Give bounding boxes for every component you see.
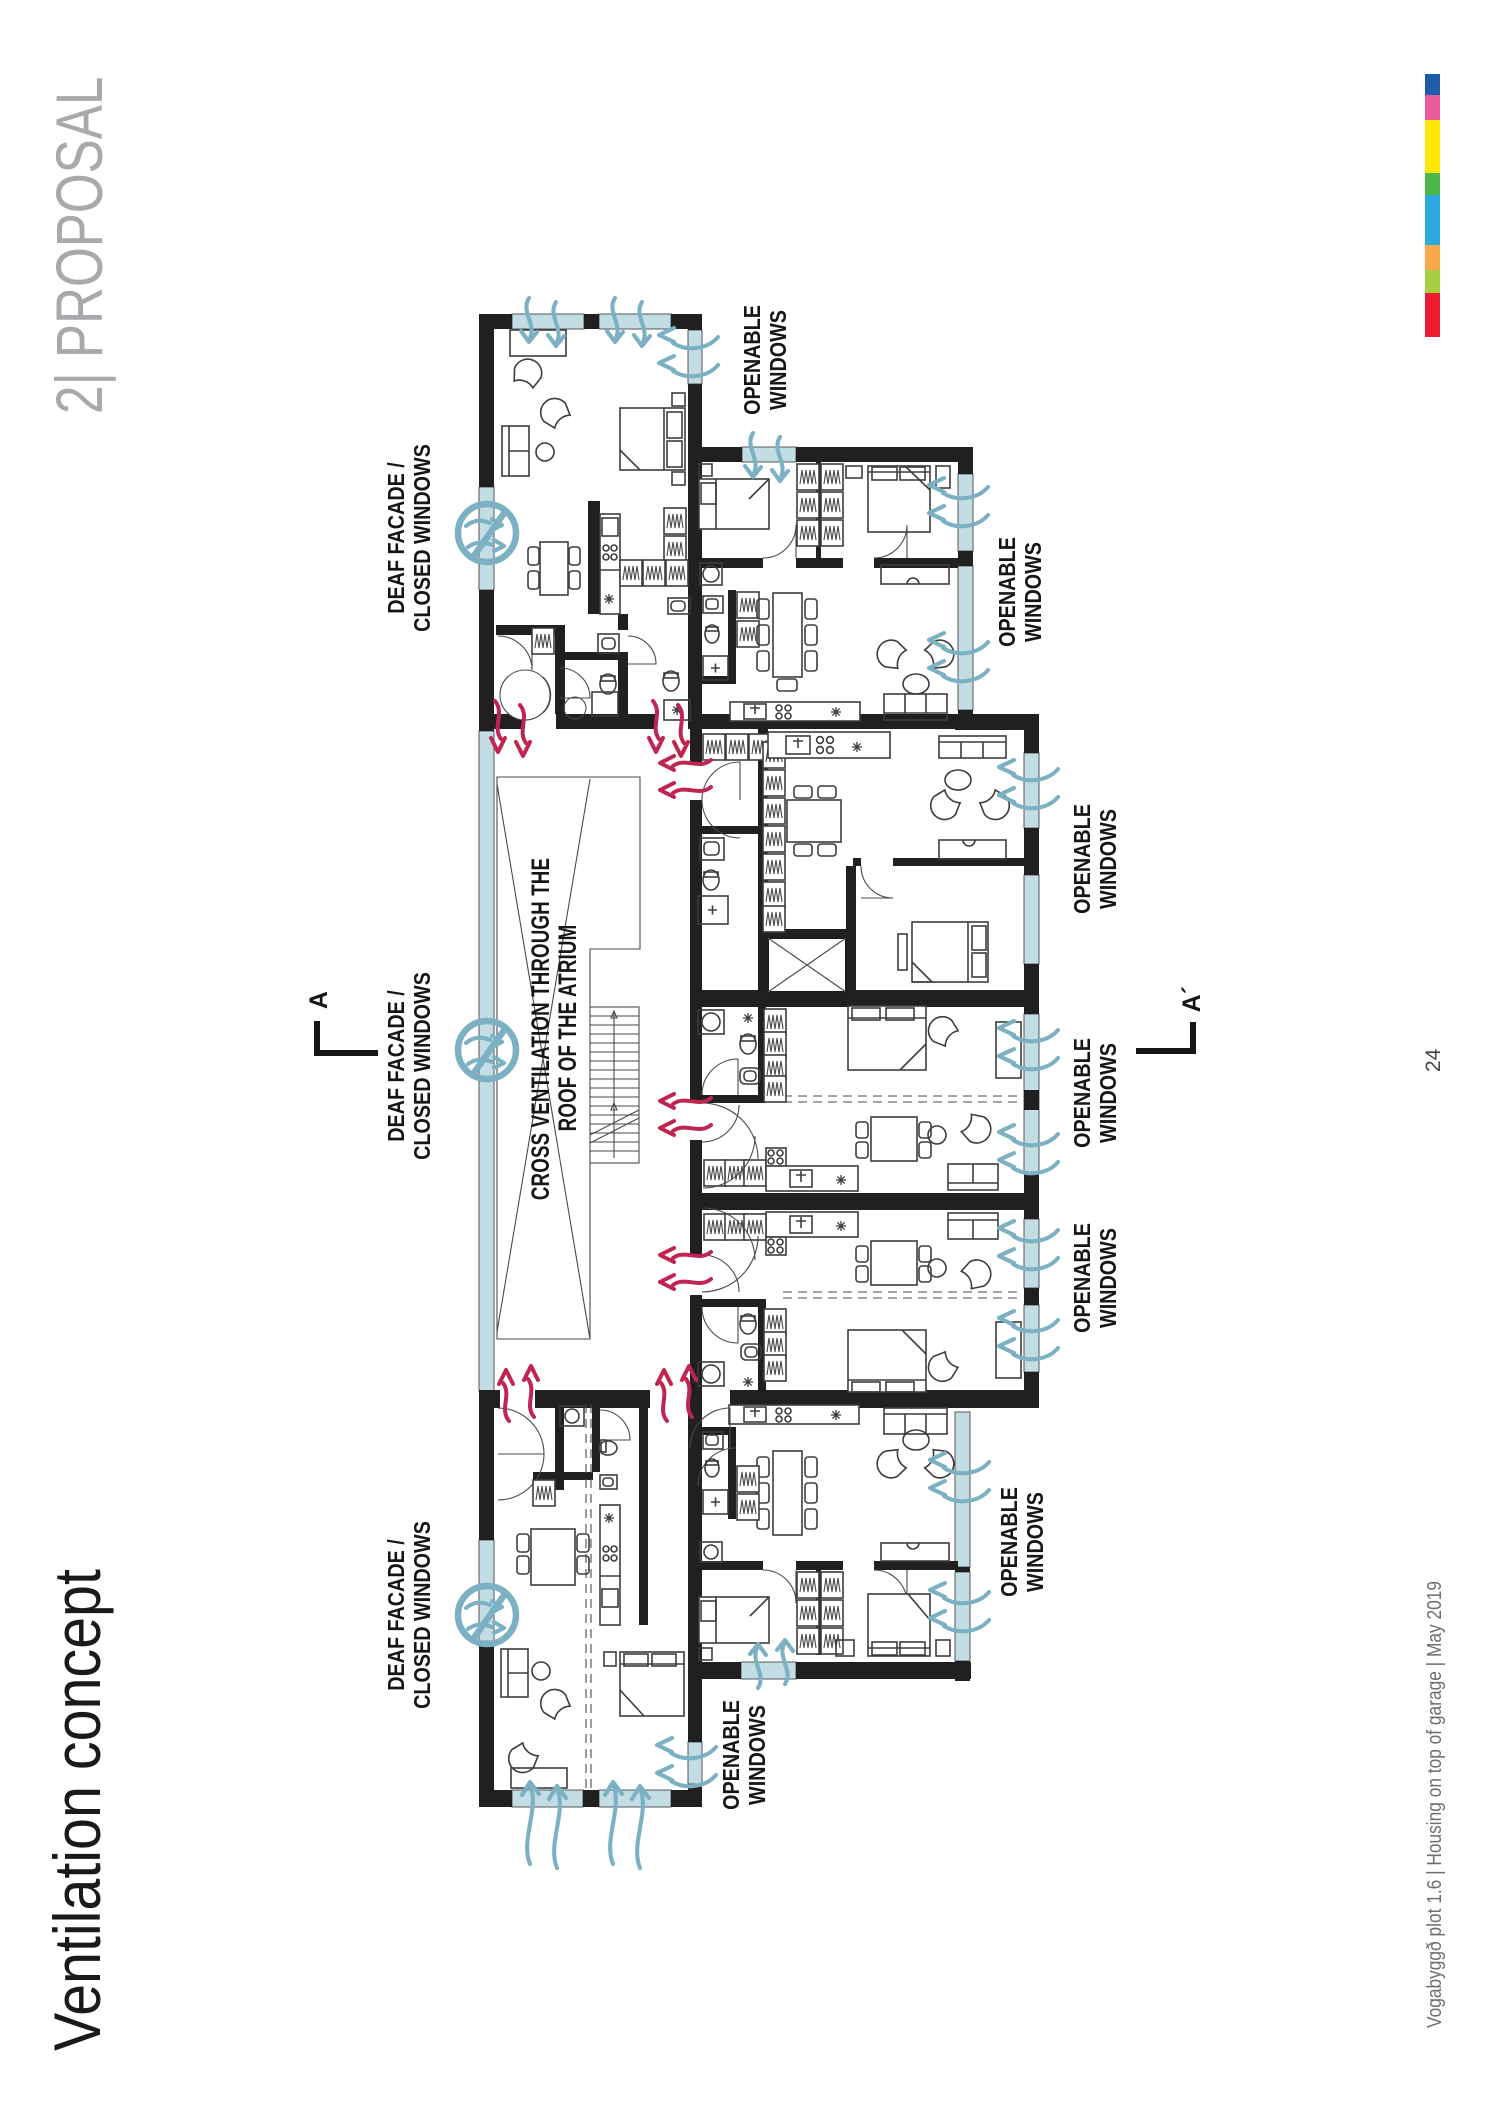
svg-text:DEAF FACADE /: DEAF FACADE / — [384, 990, 410, 1142]
svg-text:OPENABLE: OPENABLE — [1070, 804, 1096, 914]
svg-text:ROOF OF THE ATRIUM: ROOF OF THE ATRIUM — [553, 925, 581, 1132]
svg-text:DEAF FACADE /: DEAF FACADE / — [384, 1539, 410, 1691]
svg-text:A´: A´ — [1178, 986, 1206, 1013]
svg-text:2| PROPOSAL: 2| PROPOSAL — [43, 77, 117, 414]
svg-text:OPENABLE: OPENABLE — [1070, 1223, 1096, 1333]
svg-text:WINDOWS: WINDOWS — [745, 1705, 771, 1805]
svg-text:DEAF FACADE /: DEAF FACADE / — [384, 462, 410, 614]
svg-text:OPENABLE: OPENABLE — [1070, 1038, 1096, 1148]
svg-text:OPENABLE: OPENABLE — [740, 305, 766, 415]
svg-text:OPENABLE: OPENABLE — [995, 537, 1021, 647]
svg-text:Ventilation concept: Ventilation concept — [41, 1569, 115, 2051]
svg-text:CROSS VENTILATION THROUGH THE: CROSS VENTILATION THROUGH THE — [526, 858, 554, 1200]
svg-text:CLOSED WINDOWS: CLOSED WINDOWS — [410, 444, 436, 632]
svg-text:WINDOWS: WINDOWS — [1096, 1228, 1122, 1328]
svg-text:WINDOWS: WINDOWS — [766, 310, 792, 410]
svg-text:CLOSED WINDOWS: CLOSED WINDOWS — [410, 972, 436, 1160]
svg-text:WINDOWS: WINDOWS — [1096, 809, 1122, 909]
svg-text:24: 24 — [1422, 1048, 1445, 1072]
svg-text:Vogabyggð plot 1.6 | Housing o: Vogabyggð plot 1.6 | Housing on top of g… — [1424, 1581, 1447, 2028]
svg-text:CLOSED WINDOWS: CLOSED WINDOWS — [410, 1521, 436, 1709]
svg-text:OPENABLE: OPENABLE — [719, 1700, 745, 1810]
svg-text:WINDOWS: WINDOWS — [1096, 1043, 1122, 1143]
svg-text:WINDOWS: WINDOWS — [1021, 542, 1047, 642]
svg-text:OPENABLE: OPENABLE — [997, 1487, 1023, 1597]
svg-text:A: A — [305, 991, 333, 1009]
svg-text:WINDOWS: WINDOWS — [1023, 1492, 1049, 1592]
